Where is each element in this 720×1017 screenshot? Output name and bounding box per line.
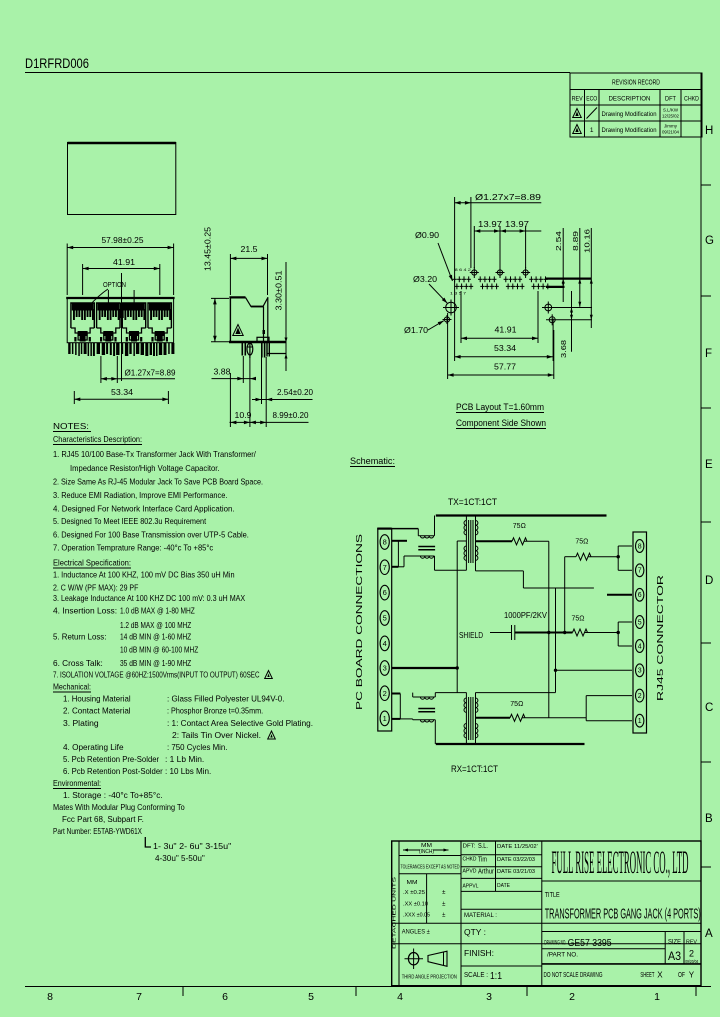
svg-text:1. Inductance At 100 KHZ, 100: 1. Inductance At 100 KHZ, 100 mV DC Bias… [53, 570, 235, 580]
svg-text:F: F [705, 348, 712, 360]
svg-text:DETACHED UNITS: DETACHED UNITS [391, 877, 396, 949]
svg-text:1: 1 [654, 991, 660, 1003]
svg-text:2. C W/W (PF MAX): 29 PF: 2. C W/W (PF MAX): 29 PF [53, 583, 138, 593]
svg-text:/PART NO.: /PART NO. [547, 951, 578, 958]
svg-text:.XX ±0.10: .XX ±0.10 [403, 902, 428, 908]
svg-text:H: H [705, 125, 713, 137]
svg-text:7: 7 [136, 991, 142, 1003]
svg-text:Electrical Specification:: Electrical Specification: [53, 558, 131, 568]
svg-text:1.2 dB MAX @ 100 MHZ: 1.2 dB MAX @ 100 MHZ [120, 620, 192, 630]
svg-text:1: 1 [383, 714, 387, 723]
svg-text:DATE: DATE [497, 883, 510, 889]
svg-text:DO NOT SCALE DRAWING: DO NOT SCALE DRAWING [544, 972, 603, 979]
svg-text:2: 2 [569, 991, 575, 1003]
svg-text:: 1 Lb Min.: : 1 Lb Min. [165, 754, 204, 764]
svg-text:NOTES:: NOTES: [53, 421, 89, 431]
svg-text:: Glass Filled Polyester UL94V: : Glass Filled Polyester UL94V-0. [167, 694, 285, 704]
svg-text:Characteristics Description:: Characteristics Description: [53, 434, 142, 444]
svg-text:5. Pcb Retention Pre-Solder: 5. Pcb Retention Pre-Solder [63, 754, 159, 764]
svg-text:DATE 03/21/03: DATE 03/21/03 [497, 869, 535, 875]
svg-text:57.77: 57.77 [494, 363, 517, 372]
svg-text:41.91: 41.91 [495, 326, 518, 335]
svg-text:Ø1.27x7=8.89: Ø1.27x7=8.89 [125, 369, 177, 378]
svg-text:±: ± [442, 913, 446, 919]
svg-text:1. Housing Material: 1. Housing Material [63, 694, 131, 704]
svg-text:Part Number: E5TAB-YWD61X: Part Number: E5TAB-YWD61X [53, 826, 142, 836]
svg-text:3.30±0.51: 3.30±0.51 [275, 270, 284, 311]
svg-text:REV: REV [572, 97, 583, 103]
svg-text:12/25/02: 12/25/02 [662, 114, 679, 119]
svg-text:FINISH:: FINISH: [464, 949, 494, 958]
svg-text:DFT: DFT [665, 97, 676, 103]
svg-text:2. Size Same As RJ-45 Modular: 2. Size Same As RJ-45 Modular Jack To Sa… [53, 477, 263, 487]
svg-text:TX=1CT:1CT: TX=1CT:1CT [448, 497, 497, 508]
svg-text:7: 7 [383, 563, 387, 572]
svg-text:SHEET: SHEET [640, 972, 654, 979]
svg-text:Ø1.27x7=8.89: Ø1.27x7=8.89 [475, 193, 542, 202]
svg-text:2: 2 [689, 949, 694, 959]
svg-text:8: 8 [383, 538, 387, 547]
svg-text:Y: Y [689, 971, 695, 980]
svg-text:2: 2 [383, 689, 387, 698]
svg-text:1- 3u" 2- 6u" 3-15u": 1- 3u" 2- 6u" 3-15u" [153, 841, 231, 851]
svg-text:Component Side Shown: Component Side Shown [456, 418, 546, 428]
svg-text:3: 3 [638, 668, 642, 675]
svg-text:S.L.: S.L. [478, 843, 488, 850]
svg-text:8 6 4 2: 8 6 4 2 [455, 267, 472, 272]
svg-text:8: 8 [638, 543, 642, 550]
svg-text:G: G [705, 235, 714, 247]
svg-text:4. Operating Life: 4. Operating Life [63, 742, 124, 752]
svg-text:75Ω: 75Ω [575, 537, 588, 546]
svg-text:09/20/04: 09/20/04 [685, 959, 699, 964]
svg-text:6: 6 [638, 592, 642, 599]
svg-text:35 dB MIN @ 1-90 MHZ: 35 dB MIN @ 1-90 MHZ [120, 658, 192, 668]
svg-text:1: 1 [590, 127, 594, 134]
svg-text:TOLERANCES EXCEPT AS NOTED: TOLERANCES EXCEPT AS NOTED [401, 864, 460, 870]
svg-text:3. Leakage Inductance At 100 K: 3. Leakage Inductance At 100 KHZ DC 100 … [53, 593, 245, 603]
svg-text:DATE 03/22/03: DATE 03/22/03 [497, 857, 535, 863]
svg-text:5: 5 [638, 619, 642, 626]
svg-text:3. Reduce EMI Radiation, Impro: 3. Reduce EMI Radiation, Improve EMI Per… [53, 490, 227, 500]
svg-text:1:1: 1:1 [490, 970, 502, 982]
svg-text:Mates With Modular Plug Confor: Mates With Modular Plug Conforming To [53, 802, 185, 812]
svg-text:GE57 3395: GE57 3395 [568, 938, 612, 949]
svg-text:D1RFRD006: D1RFRD006 [25, 56, 89, 71]
svg-text:8.89: 8.89 [571, 231, 580, 251]
svg-text:X: X [657, 971, 663, 980]
svg-text:2.54: 2.54 [554, 231, 563, 251]
svg-text:±: ± [442, 902, 446, 908]
svg-text:Ø3.20: Ø3.20 [413, 275, 438, 284]
svg-text:3: 3 [383, 664, 387, 673]
svg-text:RX=1CT:1CT: RX=1CT:1CT [451, 764, 498, 775]
svg-text:3. Plating: 3. Plating [63, 718, 99, 728]
svg-text:75Ω: 75Ω [513, 521, 526, 530]
svg-text:Ø1.70: Ø1.70 [404, 326, 429, 335]
svg-text:SIZE: SIZE [668, 939, 681, 945]
svg-text:8.99±0.20: 8.99±0.20 [273, 411, 310, 420]
svg-text:2: Tails Tin Over Nickel.: 2: Tails Tin Over Nickel. [172, 730, 261, 740]
svg-text:: 1: Contact Area Selective Go: : 1: Contact Area Selective Gold Plating… [167, 718, 313, 728]
svg-text:14 dB MIN @ 1-60 MHZ: 14 dB MIN @ 1-60 MHZ [120, 632, 192, 642]
svg-text:MATERIAL :: MATERIAL : [464, 912, 497, 919]
svg-text:Mechanical:: Mechanical: [53, 682, 91, 692]
svg-text:1000PF/2KV: 1000PF/2KV [504, 611, 548, 620]
svg-text:TRANSFORMER PCB GANG JACK (4 P: TRANSFORMER PCB GANG JACK (4 PORTS) [545, 907, 701, 923]
svg-text:OPTION: OPTION [103, 280, 126, 289]
svg-text:PC BOARD CONNECTIONS: PC BOARD CONNECTIONS [355, 533, 364, 710]
svg-text:4. Designed For Network Interf: 4. Designed For Network Interface Card A… [53, 504, 235, 514]
svg-text:MM: MM [407, 880, 418, 886]
svg-text:75Ω: 75Ω [510, 699, 523, 708]
svg-text:57.98±0.25: 57.98±0.25 [102, 236, 145, 245]
svg-text:53.34: 53.34 [494, 344, 517, 353]
svg-text:5: 5 [308, 991, 314, 1003]
svg-text:1 3 5 7: 1 3 5 7 [450, 291, 467, 296]
svg-text:Schematic:: Schematic: [350, 456, 395, 466]
svg-text:E: E [705, 459, 713, 471]
svg-text:8: 8 [47, 991, 53, 1003]
svg-text:4: 4 [397, 991, 403, 1003]
svg-text:Drawing Modification: Drawing Modification [602, 111, 657, 118]
svg-text:5: 5 [383, 614, 387, 623]
svg-text:: Phosphor Bronze t=0.35mm.: : Phosphor Bronze t=0.35mm. [167, 706, 263, 716]
svg-text:: 10 Lbs Min.: : 10 Lbs Min. [165, 766, 211, 776]
svg-text:B: B [705, 813, 713, 825]
svg-text:6: 6 [383, 588, 387, 597]
svg-text:APVD: APVD [463, 869, 477, 875]
svg-text:2: 2 [638, 693, 642, 700]
svg-text:SCALE :: SCALE : [464, 972, 488, 979]
svg-text:2. Contact Material: 2. Contact Material [63, 706, 131, 716]
svg-text:.XXX ±0.05: .XXX ±0.05 [403, 913, 430, 919]
svg-text:D: D [705, 575, 713, 587]
svg-text:Environmental:: Environmental: [53, 778, 101, 788]
svg-text:±: ± [442, 890, 446, 896]
svg-text:CHKD: CHKD [684, 97, 700, 103]
svg-text:1: 1 [638, 718, 642, 725]
svg-text:PCB Layout T=1.60mm: PCB Layout T=1.60mm [456, 402, 544, 412]
svg-text:DESCRIPTION: DESCRIPTION [609, 97, 651, 103]
svg-text:1. Storage : -40°c To+85°c.: 1. Storage : -40°c To+85°c. [63, 790, 163, 800]
svg-text:5. Return Loss:: 5. Return Loss: [53, 632, 106, 642]
svg-text:Drawing Modification: Drawing Modification [602, 127, 657, 134]
svg-text:ECO: ECO [586, 97, 597, 103]
svg-text:Jimmy: Jimmy [664, 124, 678, 129]
svg-text:6. Pcb Retention Post-Solder: 6. Pcb Retention Post-Solder [63, 766, 163, 776]
svg-text:C: C [705, 702, 713, 714]
svg-text:10.16: 10.16 [583, 229, 592, 253]
svg-text:: 750 Cycles Min.: : 750 Cycles Min. [167, 742, 228, 752]
svg-text:THIRD ANGLE PROJECTION: THIRD ANGLE PROJECTION [402, 975, 457, 981]
svg-text:Tim: Tim [478, 857, 487, 864]
svg-text:REV: REV [686, 939, 697, 945]
svg-text:1.0 dB MAX @ 1-80 MHZ: 1.0 dB MAX @ 1-80 MHZ [120, 606, 195, 616]
svg-text:.X ±0.25: .X ±0.25 [403, 890, 425, 896]
svg-text:13.45±0.25: 13.45±0.25 [204, 226, 213, 271]
svg-text:TITLE: TITLE [545, 892, 560, 899]
svg-text:APPVL: APPVL [463, 884, 479, 890]
svg-text:7. Operation Temprature Range:: 7. Operation Temprature Range: -40°c To … [53, 543, 214, 553]
svg-text:Impedance Resistor/High Voltag: Impedance Resistor/High Voltage Capacito… [70, 463, 220, 473]
svg-text:Fcc Part 68, Subpart F.: Fcc Part 68, Subpart F. [62, 814, 144, 824]
svg-text:4: 4 [638, 643, 642, 650]
svg-text:A3: A3 [668, 949, 681, 963]
svg-text:REVISION RECORD: REVISION RECORD [612, 80, 660, 87]
svg-text:DFT:: DFT: [463, 844, 477, 850]
svg-text:ANGLES ±: ANGLES ± [402, 930, 431, 936]
svg-text:DATE 11/25/02’: DATE 11/25/02’ [497, 844, 538, 850]
svg-text:Arthur: Arthur [478, 869, 495, 876]
svg-text:4: 4 [383, 639, 387, 648]
svg-text:75Ω: 75Ω [572, 614, 585, 623]
svg-text:CHKD: CHKD [463, 857, 477, 863]
svg-text:4. Insertion Loss:: 4. Insertion Loss: [53, 606, 117, 616]
svg-text:OF: OF [678, 972, 685, 979]
svg-text:RJ45 CONNECTOR: RJ45 CONNECTOR [656, 575, 665, 701]
svg-text:53.34: 53.34 [111, 388, 134, 397]
svg-text:4-30u" 5-50u": 4-30u" 5-50u" [155, 853, 205, 863]
svg-text:Ø0.90: Ø0.90 [415, 231, 440, 240]
svg-text:SHIELD: SHIELD [459, 631, 483, 640]
svg-text:1. RJ45 10/100 Base-Tx Transfo: 1. RJ45 10/100 Base-Tx Transformer Jack … [53, 449, 256, 459]
svg-text:S.L/KW: S.L/KW [663, 108, 679, 113]
svg-text:13.97: 13.97 [478, 220, 503, 229]
svg-text:21.5: 21.5 [241, 245, 259, 254]
svg-text:3.88: 3.88 [214, 368, 232, 377]
svg-text:A: A [705, 928, 713, 940]
svg-text:2.54±0.20: 2.54±0.20 [277, 388, 314, 397]
svg-text:09/21/04: 09/21/04 [662, 130, 679, 135]
svg-text:1: 1 [576, 128, 579, 133]
svg-text:QTY :: QTY : [464, 927, 486, 937]
svg-text:FULL RISE ELECTRONIC CO., LTD: FULL RISE ELECTRONIC CO., LTD [552, 845, 689, 881]
svg-text:3: 3 [486, 991, 492, 1003]
svg-text:3.68: 3.68 [559, 340, 568, 358]
svg-text:DRAWING NO.: DRAWING NO. [544, 941, 566, 947]
svg-text:(INCH): (INCH) [419, 849, 434, 855]
svg-text:6. Cross Talk:: 6. Cross Talk: [53, 658, 103, 668]
svg-text:7: 7 [638, 568, 642, 575]
svg-text:5. Designed To Meet IEEE 802.3: 5. Designed To Meet IEEE 802.3u Requirem… [53, 516, 207, 526]
svg-text:7. ISOLATION VOLTAGE @60HZ:150: 7. ISOLATION VOLTAGE @60HZ:1500Vrms(INPU… [53, 670, 260, 680]
svg-text:6. Designed For 100 Base Trans: 6. Designed For 100 Base Transmission ov… [53, 530, 249, 540]
svg-text:41.91: 41.91 [113, 258, 136, 267]
svg-text:6: 6 [222, 991, 228, 1003]
svg-text:10 dB MIN @ 60-100 MHZ: 10 dB MIN @ 60-100 MHZ [120, 645, 199, 655]
